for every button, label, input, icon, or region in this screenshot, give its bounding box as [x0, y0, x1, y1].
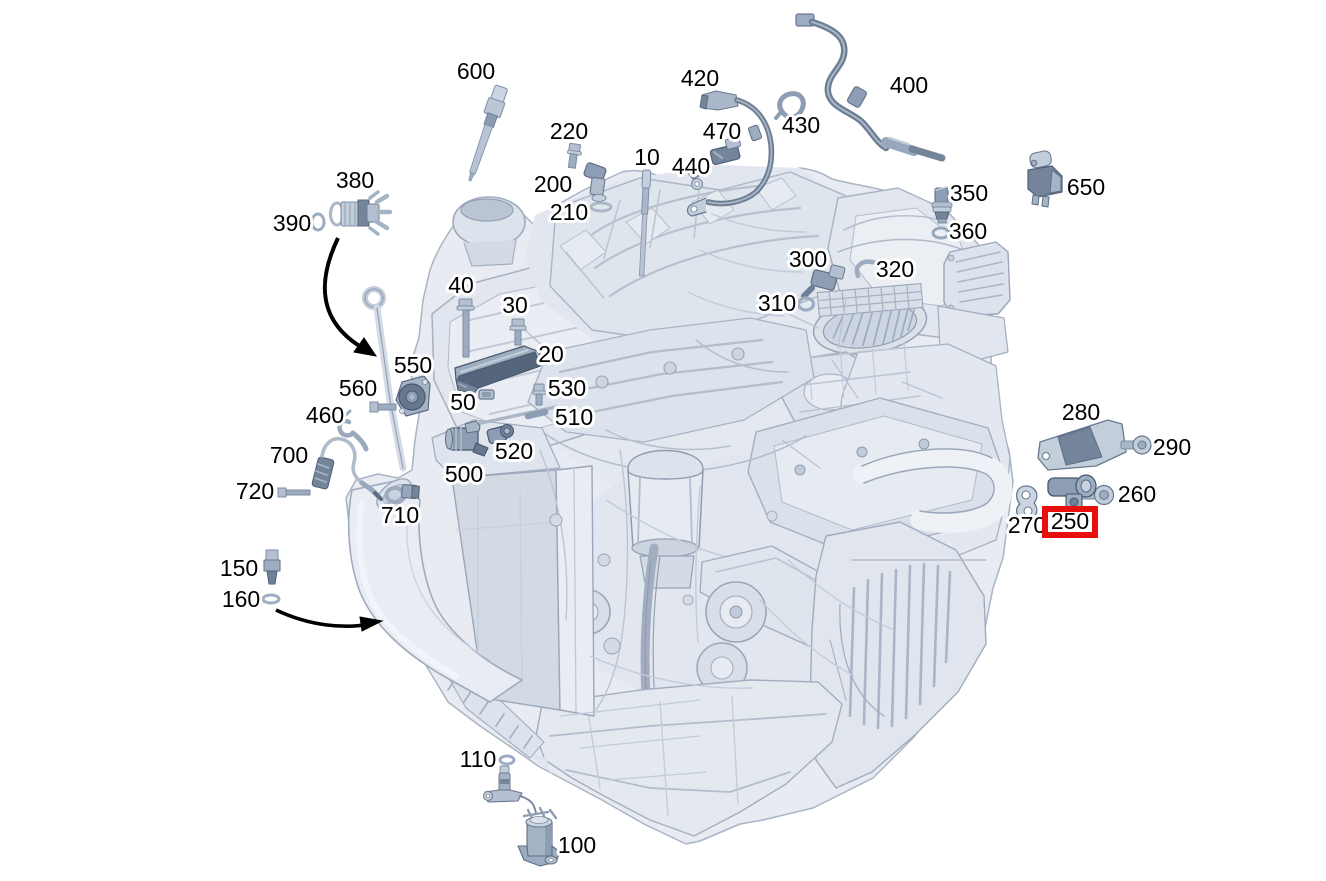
- svg-text:390: 390: [273, 210, 311, 236]
- svg-text:160: 160: [222, 586, 260, 612]
- svg-text:360: 360: [949, 218, 987, 244]
- svg-text:720: 720: [236, 478, 274, 504]
- svg-text:500: 500: [445, 461, 483, 487]
- svg-text:600: 600: [457, 58, 495, 84]
- svg-text:430: 430: [782, 112, 820, 138]
- svg-text:10: 10: [634, 144, 660, 170]
- svg-text:310: 310: [758, 290, 796, 316]
- svg-text:300: 300: [789, 246, 827, 272]
- svg-text:200: 200: [534, 171, 572, 197]
- svg-text:530: 530: [548, 375, 586, 401]
- svg-text:440: 440: [672, 153, 710, 179]
- svg-text:290: 290: [1153, 434, 1191, 460]
- svg-text:520: 520: [495, 438, 533, 464]
- svg-text:260: 260: [1118, 481, 1156, 507]
- svg-text:50: 50: [450, 389, 476, 415]
- svg-text:560: 560: [339, 375, 377, 401]
- svg-text:460: 460: [306, 402, 344, 428]
- svg-text:250: 250: [1051, 508, 1089, 534]
- svg-text:280: 280: [1062, 399, 1100, 425]
- svg-text:30: 30: [502, 292, 528, 318]
- svg-text:550: 550: [394, 352, 432, 378]
- svg-text:400: 400: [890, 72, 928, 98]
- svg-text:700: 700: [270, 442, 308, 468]
- svg-text:270: 270: [1008, 512, 1046, 538]
- svg-text:350: 350: [950, 180, 988, 206]
- svg-text:380: 380: [336, 167, 374, 193]
- svg-text:20: 20: [538, 341, 564, 367]
- svg-text:650: 650: [1067, 174, 1105, 200]
- svg-text:420: 420: [681, 65, 719, 91]
- svg-text:100: 100: [558, 832, 596, 858]
- svg-text:40: 40: [448, 272, 474, 298]
- svg-text:320: 320: [876, 256, 914, 282]
- svg-text:110: 110: [460, 746, 497, 772]
- svg-text:470: 470: [703, 118, 741, 144]
- svg-text:150: 150: [220, 555, 258, 581]
- svg-text:210: 210: [550, 199, 588, 225]
- svg-text:510: 510: [555, 404, 593, 430]
- svg-text:710: 710: [381, 502, 419, 528]
- svg-text:220: 220: [550, 118, 588, 144]
